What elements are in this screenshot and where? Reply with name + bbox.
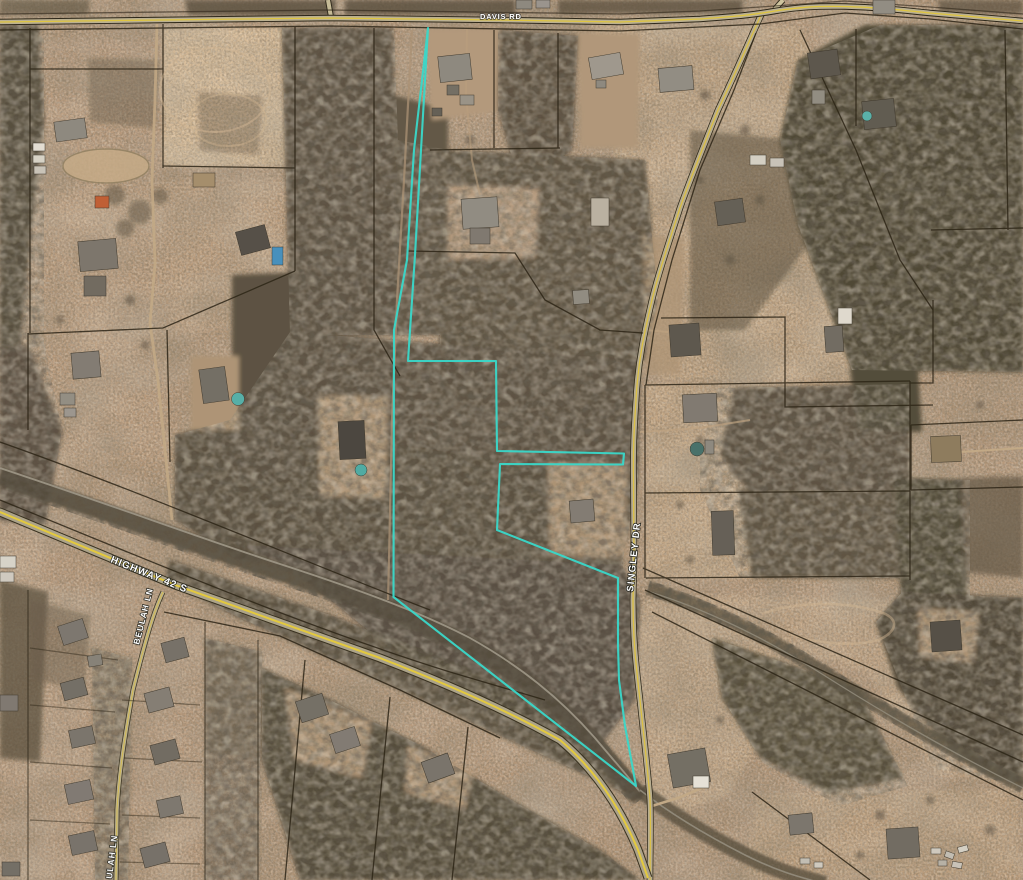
svg-text:DAVIS RD: DAVIS RD — [480, 12, 522, 21]
